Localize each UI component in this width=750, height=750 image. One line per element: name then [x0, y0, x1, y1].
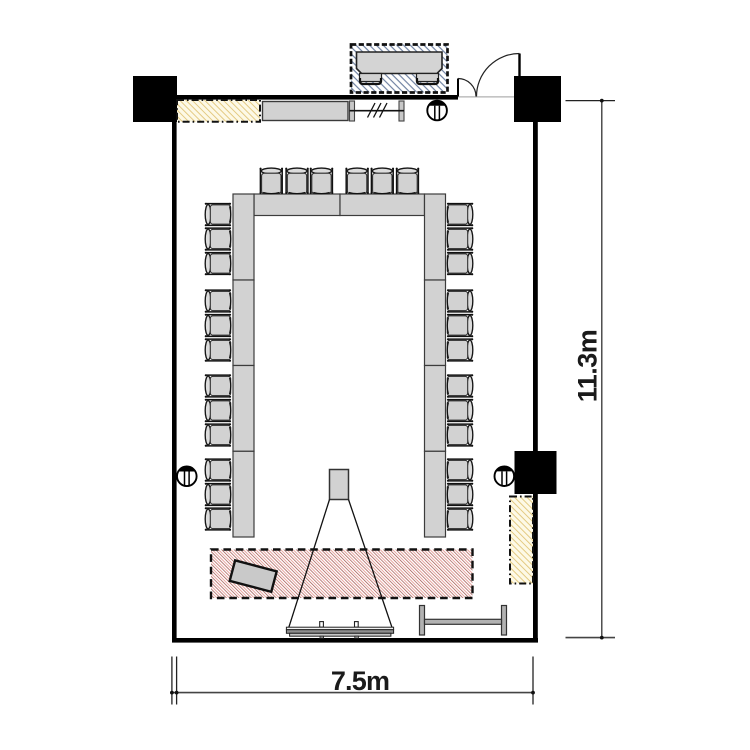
svg-text:11.3m: 11.3m — [573, 330, 603, 403]
svg-text:7.5m: 7.5m — [331, 666, 389, 696]
